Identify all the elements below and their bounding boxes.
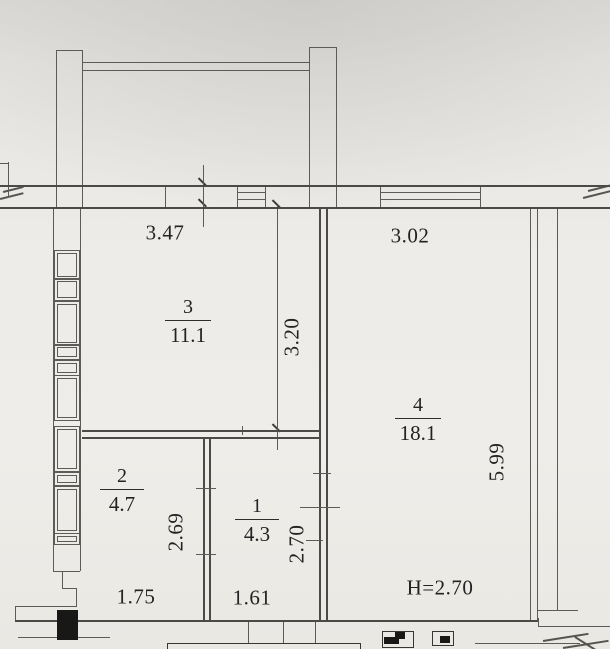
wall-line (82, 50, 83, 207)
wall-line (380, 185, 381, 207)
wall-line (380, 199, 480, 200)
lower-balcony-outline (167, 643, 361, 649)
wall-line (53, 571, 80, 572)
wall-line (203, 165, 204, 227)
wall-line (538, 626, 610, 627)
dark-wall-block (57, 610, 78, 640)
wall-line (15, 606, 16, 621)
stair-wall-cell (54, 472, 80, 486)
wall-line (62, 571, 63, 589)
wall-line (538, 610, 578, 611)
dim-bottom-left: 1.75 (117, 585, 156, 610)
wall-line (237, 185, 238, 207)
wall-line (326, 207, 328, 620)
dim-top-right: 3.02 (391, 224, 430, 249)
floor-plan: 3 11.1 4 18.1 2 4.7 1 4.3 3.47 3.02 3.20… (0, 0, 610, 649)
dim-room2-depth: 2.69 (164, 513, 189, 552)
wall-line (557, 207, 558, 610)
stair-wall-cell (54, 426, 80, 472)
stair-wall-cell (54, 533, 80, 545)
wall-line (56, 50, 57, 207)
wall-line (0, 185, 610, 187)
wall-line (0, 207, 610, 209)
stair-wall-cell (54, 301, 80, 346)
break-mark (583, 190, 610, 198)
stair-fixture-fill (395, 632, 405, 639)
room-number: 2 (100, 466, 144, 490)
wall-line (76, 588, 77, 606)
wall-line (53, 207, 54, 571)
room-label-3: 3 11.1 (165, 297, 211, 346)
wall-line (283, 620, 284, 644)
room-label-2: 2 4.7 (100, 466, 144, 515)
wall-line (480, 185, 481, 207)
wall-line (537, 207, 538, 620)
wall-line (248, 620, 249, 644)
wall-line (0, 163, 9, 164)
wall-line (15, 620, 538, 622)
wall-line (265, 185, 266, 207)
wall-line (237, 199, 265, 200)
break-mark (0, 192, 23, 199)
stair-wall-cell (54, 344, 80, 360)
stair-fixture-fill (440, 636, 450, 643)
room-label-4: 4 18.1 (395, 395, 441, 444)
wall-line (82, 62, 309, 63)
wall-line (309, 47, 337, 48)
wall-line (15, 606, 77, 607)
stair-wall-cell (54, 250, 80, 280)
wall-line (209, 437, 211, 620)
room-number: 4 (395, 395, 441, 419)
dim-top-left: 3.47 (146, 221, 185, 246)
wall-line (8, 162, 9, 197)
room-number: 1 (235, 496, 279, 520)
room-label-1: 1 4.3 (235, 496, 279, 545)
wall-line (62, 588, 77, 589)
wall-line (300, 507, 340, 508)
wall-line (82, 437, 320, 439)
dim-bottom-mid: 1.61 (233, 586, 272, 611)
wall-line (475, 643, 580, 644)
room-area: 18.1 (395, 419, 441, 444)
wall-line (56, 50, 82, 51)
wall-line (165, 185, 166, 207)
stair-wall-cell (54, 375, 80, 421)
wall-line (319, 207, 321, 620)
wall-line (313, 473, 331, 474)
dim-room4-depth: 5.99 (485, 443, 510, 482)
wall-line (196, 488, 216, 489)
room-area: 4.7 (100, 490, 144, 515)
room-area: 11.1 (165, 321, 211, 346)
wall-line (196, 554, 216, 555)
stair-wall-cell (54, 360, 80, 376)
stair-wall-cell (54, 486, 80, 534)
wall-line (82, 430, 320, 432)
wall-line (237, 192, 265, 193)
stair-wall-cell (54, 278, 80, 301)
break-mark (3, 186, 24, 193)
room-area: 4.3 (235, 520, 279, 545)
wall-line (380, 192, 480, 193)
wall-line (203, 437, 205, 620)
room-number: 3 (165, 297, 211, 321)
wall-line (80, 207, 81, 571)
wall-line (530, 207, 531, 620)
wall-line (336, 47, 337, 207)
dim-room3-depth: 3.20 (280, 318, 305, 357)
wall-line (315, 620, 316, 644)
dim-room1-depth: 2.70 (285, 525, 310, 564)
wall-line (309, 47, 310, 207)
wall-line (277, 205, 278, 450)
dim-ceiling-height: H=2.70 (407, 576, 474, 601)
wall-line (82, 70, 309, 71)
